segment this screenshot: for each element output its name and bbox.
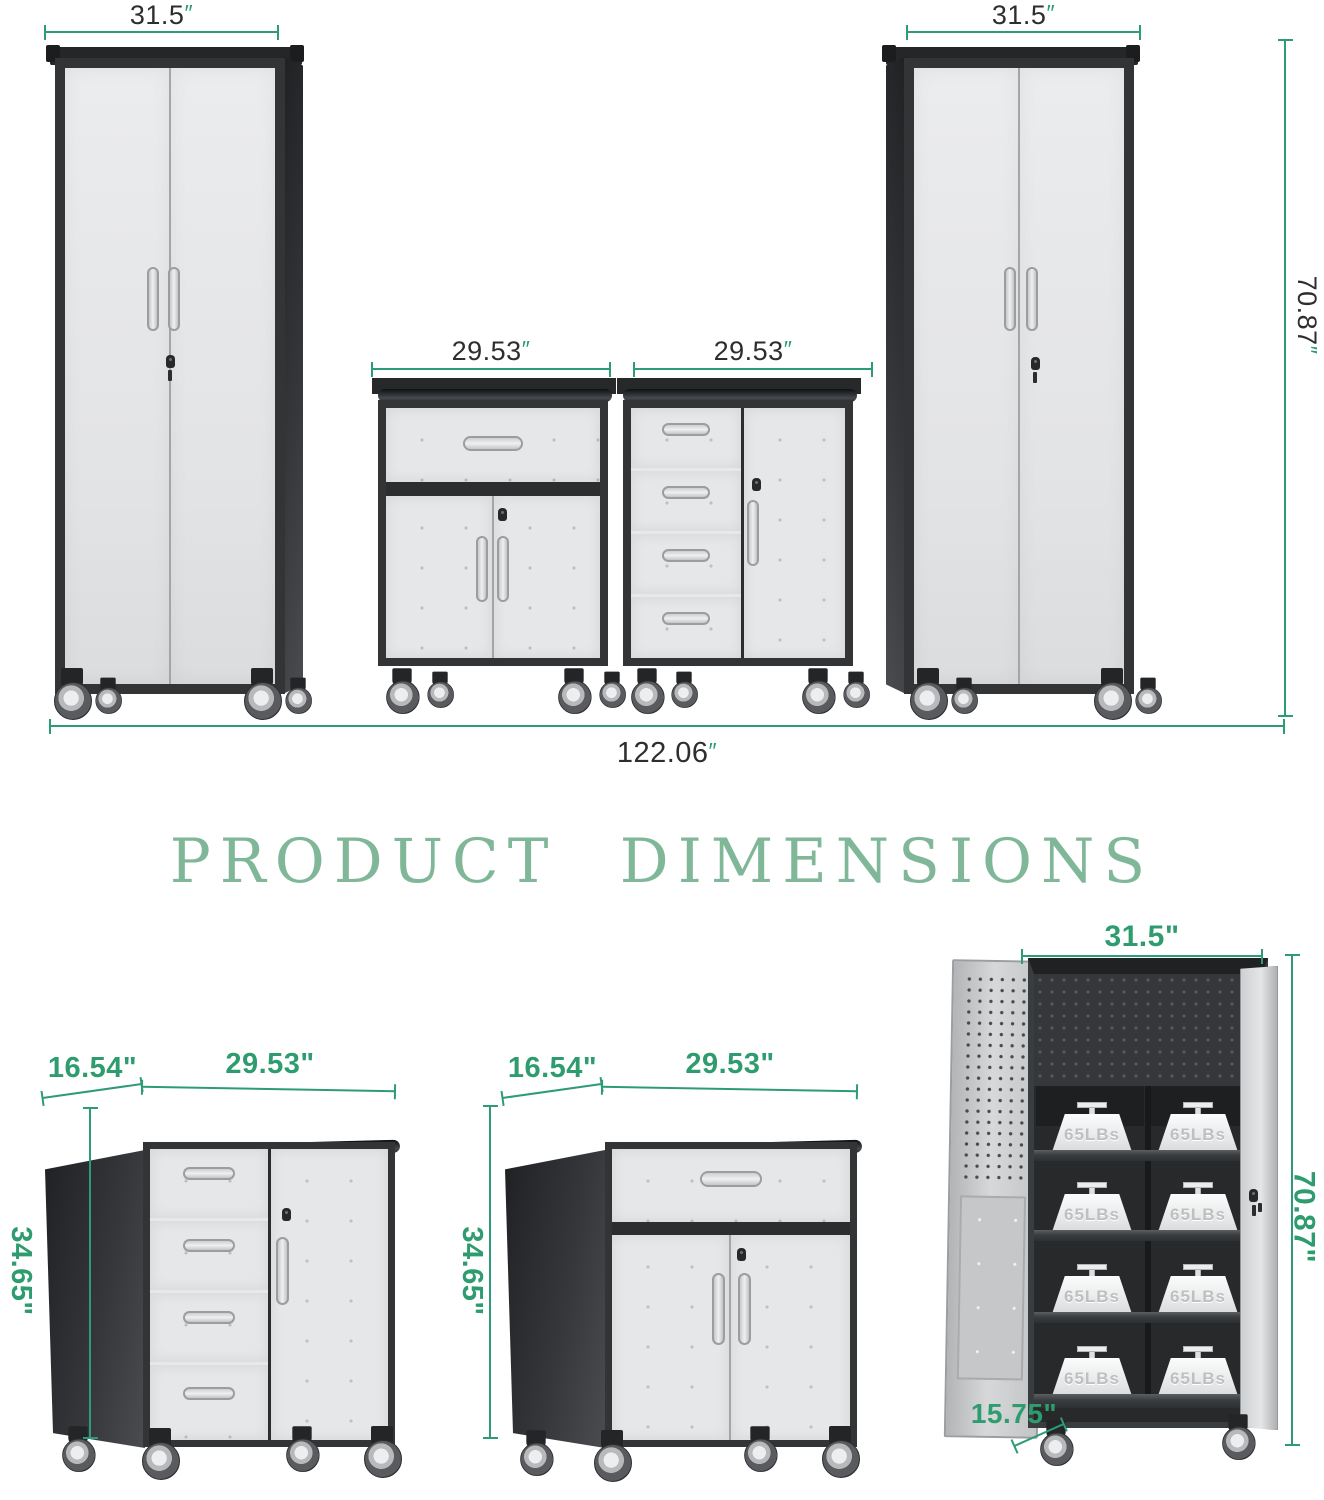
keyhole: [498, 508, 507, 521]
dim-label-width-tall-right: 31.5″: [907, 0, 1140, 31]
drawer-handle: [183, 1167, 235, 1180]
caster: [556, 668, 591, 714]
keyhole: [166, 355, 175, 368]
caster: [670, 672, 698, 708]
caster: [94, 678, 122, 714]
product-dimensions-diagram: 31.5″ 29.53″ 29.53″ 31.5″ 70.87″ 122.06″…: [0, 0, 1324, 1500]
door-handle: [747, 500, 759, 566]
dim-line-width-mid-right: [634, 368, 872, 370]
drawer-face: [631, 534, 741, 594]
weight: 65LBs: [1158, 1102, 1238, 1152]
caster: [242, 668, 282, 720]
dim-label-height: 34.65": [458, 1217, 488, 1325]
drawer-handle: [183, 1387, 235, 1400]
page-title: PRODUCT DIMENSIONS: [0, 826, 1324, 897]
dim-label-total-width: 122.06″: [50, 737, 1284, 770]
door-gap: [729, 1235, 731, 1440]
divider: [386, 482, 600, 496]
dim-label-width-mid-right: 29.53″: [634, 336, 872, 367]
dim-line-width-mid-left: [372, 368, 610, 370]
shelf: [1034, 1150, 1262, 1161]
caster: [950, 678, 978, 714]
caster: [52, 668, 92, 720]
door-handle: [1004, 267, 1016, 331]
cabinet-front: [55, 58, 285, 694]
weight: 65LBs: [1158, 1182, 1238, 1232]
door-handle: [497, 536, 509, 602]
drawer-handle: [183, 1239, 235, 1252]
cabinet-front: [605, 1142, 857, 1447]
drawer-handle: [700, 1171, 762, 1187]
caster: [592, 1430, 632, 1482]
drawer-face: [631, 597, 741, 658]
dim-line-width: [1022, 955, 1262, 957]
keyhole: [737, 1248, 746, 1261]
door-handle: [276, 1237, 289, 1305]
dim-line-total-width: [50, 725, 1284, 727]
weight: 65LBs: [1052, 1346, 1132, 1396]
drawer-handle: [662, 612, 710, 625]
keyhole: [1031, 357, 1040, 370]
caster: [800, 668, 835, 714]
cabinet-door: [744, 408, 845, 658]
caster: [140, 1428, 180, 1480]
dim-line-width-tall-right: [907, 31, 1140, 33]
caster: [1092, 668, 1132, 720]
drawer-handle: [183, 1311, 235, 1324]
dim-line-height: [89, 1108, 91, 1438]
dim-label-width: 31.5": [1042, 920, 1242, 954]
cabinet-side-panel: [45, 1150, 145, 1448]
key: [1258, 1203, 1262, 1212]
caster: [518, 1430, 553, 1476]
cabinet-door-right: [494, 496, 600, 658]
drawer-face: [150, 1293, 268, 1362]
caster: [820, 1426, 860, 1478]
door-gap: [492, 496, 494, 658]
dim-label-height-right: 70.87″: [1288, 254, 1322, 376]
dim-label-depth: 16.54": [495, 1052, 610, 1085]
caster: [908, 668, 948, 720]
cabinet-side-panel: [886, 56, 906, 694]
dim-label-depth: 16.54": [35, 1052, 150, 1085]
caster: [742, 1426, 777, 1472]
dim-label-height: 34.65": [7, 1217, 37, 1325]
drawer-handle: [662, 486, 710, 499]
weight: 65LBs: [1158, 1264, 1238, 1314]
door-handle: [738, 1273, 751, 1345]
corner-cap: [882, 45, 896, 62]
weight: 65LBs: [1052, 1102, 1132, 1152]
door-handle: [1026, 267, 1038, 331]
shelf: [1034, 1312, 1262, 1323]
keyhole: [282, 1208, 291, 1221]
dim-label-depth: 15.75": [958, 1398, 1070, 1430]
drawer-handle: [662, 549, 710, 562]
dim-label-width-mid-left: 29.53″: [372, 336, 610, 367]
door-lower-panel: [957, 1195, 1026, 1380]
drawer-face: [631, 408, 741, 468]
key: [1033, 372, 1037, 383]
caster: [629, 668, 664, 714]
keyhole: [1249, 1189, 1258, 1202]
caster: [284, 678, 312, 714]
dim-label-width: 29.53": [155, 1048, 385, 1081]
pegboard-back: [1034, 974, 1262, 1086]
cabinet-door-left: [65, 68, 169, 684]
shelf: [1034, 1230, 1262, 1241]
dim-line-depth: [502, 1083, 601, 1099]
dim-line-width-tall-left: [45, 31, 278, 33]
caster: [598, 672, 626, 708]
cabinet-front: [623, 400, 853, 666]
weight: 65LBs: [1052, 1182, 1132, 1232]
caster: [426, 672, 454, 708]
drawer-handle: [463, 436, 523, 451]
key: [168, 370, 172, 381]
pegboard-door-panel: [960, 973, 1032, 1186]
cabinet-door-left: [914, 68, 1018, 684]
keyhole: [752, 478, 761, 491]
caster: [1134, 678, 1162, 714]
cabinet-side-panel: [505, 1150, 605, 1448]
center-divider: [1145, 1086, 1151, 1408]
open-door-right: [1240, 966, 1278, 1430]
cabinet-body-open: 65LBs 65LBs 65LBs 65LBs 65LBs 65LBs 65LB…: [1028, 958, 1268, 1428]
dim-line-depth: [42, 1083, 141, 1099]
key: [1252, 1205, 1256, 1216]
cabinet-front: [378, 400, 608, 666]
dim-line-width: [142, 1086, 395, 1092]
door-gap: [1018, 68, 1020, 684]
cabinet-side-panel: [283, 56, 303, 694]
dim-label-height: 70.87": [1291, 1160, 1321, 1275]
caster: [362, 1426, 402, 1478]
cabinet-front: [143, 1142, 395, 1447]
drawer-handle: [662, 423, 710, 436]
door-handle: [476, 536, 488, 602]
weight: 65LBs: [1052, 1264, 1132, 1314]
drawer-face: [631, 471, 741, 531]
dim-line-height-right: [1284, 40, 1286, 716]
dim-line-height: [489, 1106, 491, 1438]
cabinet-front: [904, 58, 1134, 694]
corner-cap: [290, 45, 304, 62]
caster: [284, 1426, 319, 1472]
divider: [612, 1222, 850, 1235]
door-handle: [712, 1273, 725, 1345]
dim-label-width: 29.53": [615, 1048, 845, 1081]
drawer-face: [150, 1221, 268, 1290]
caster: [384, 668, 419, 714]
caster: [842, 672, 870, 708]
drawer-face: [150, 1149, 268, 1218]
door-handle: [168, 267, 180, 331]
door-handle: [147, 267, 159, 331]
dim-line-width: [602, 1086, 857, 1092]
weight: 65LBs: [1158, 1346, 1238, 1396]
cabinet-door-right: [171, 68, 275, 684]
dim-label-width-tall-left: 31.5″: [45, 0, 278, 31]
caster: [1220, 1414, 1255, 1460]
